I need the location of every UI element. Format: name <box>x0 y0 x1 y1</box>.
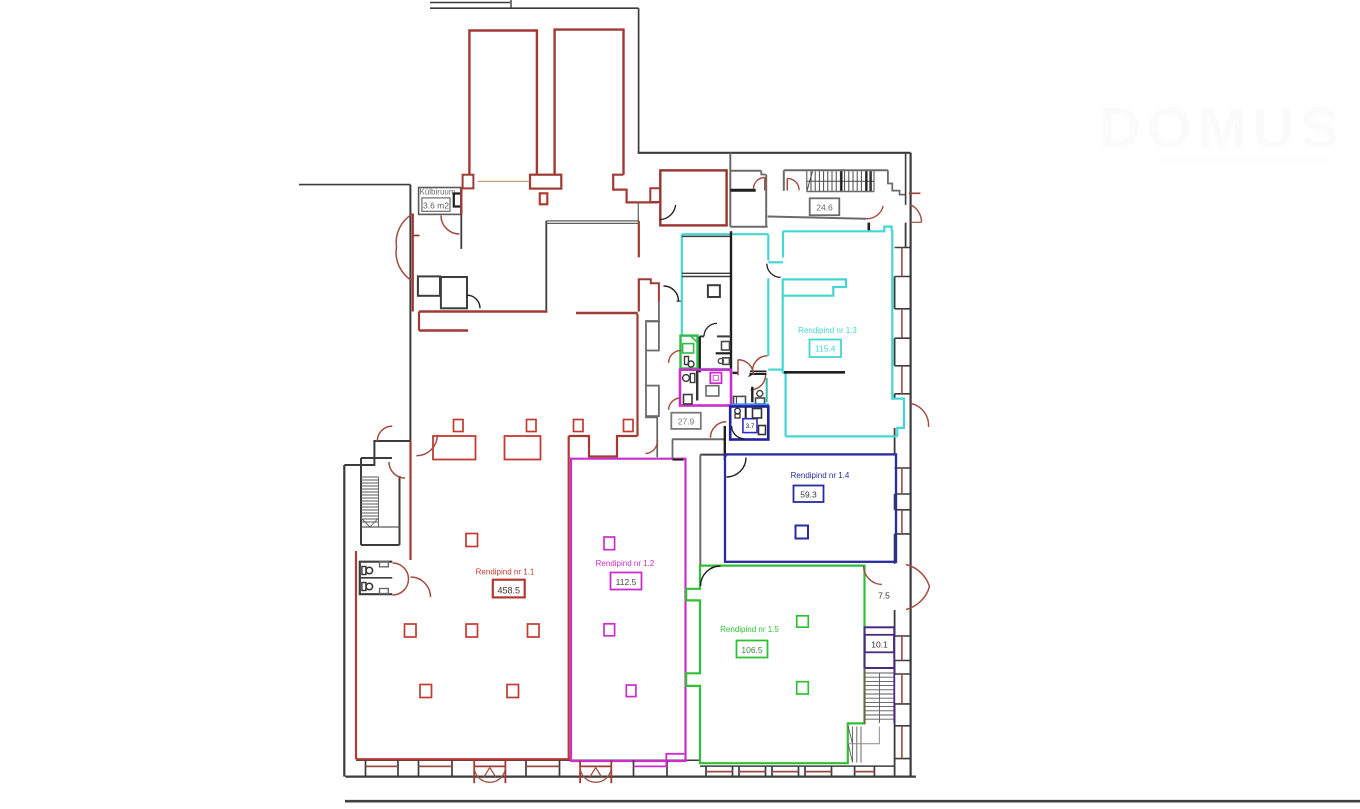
svg-text:Rendipind nr 1.1: Rendipind nr 1.1 <box>476 568 535 577</box>
svg-text:Külbiruum: Külbiruum <box>419 188 455 197</box>
svg-text:7.5: 7.5 <box>878 591 890 601</box>
svg-text:106.5: 106.5 <box>741 645 763 655</box>
svg-text:Rendipind nr 1.2: Rendipind nr 1.2 <box>596 559 655 568</box>
svg-text:10.1: 10.1 <box>871 640 888 650</box>
svg-text:59.3: 59.3 <box>800 490 817 500</box>
svg-text:112.5: 112.5 <box>616 577 637 587</box>
svg-text:3.7: 3.7 <box>745 423 754 430</box>
svg-text:Rendipind nr 1.5: Rendipind nr 1.5 <box>720 625 779 634</box>
svg-text:458.5: 458.5 <box>498 586 521 596</box>
svg-text:DOMUS: DOMUS <box>1099 96 1345 161</box>
svg-text:27.9: 27.9 <box>678 417 695 427</box>
svg-text:Rendipind nr 1.3: Rendipind nr 1.3 <box>798 326 857 335</box>
svg-text:115.4: 115.4 <box>815 344 836 354</box>
svg-text:Rendipind nr 1.4: Rendipind nr 1.4 <box>791 471 850 480</box>
svg-text:24.6: 24.6 <box>816 203 833 213</box>
svg-text:3.6 m2: 3.6 m2 <box>423 200 449 210</box>
